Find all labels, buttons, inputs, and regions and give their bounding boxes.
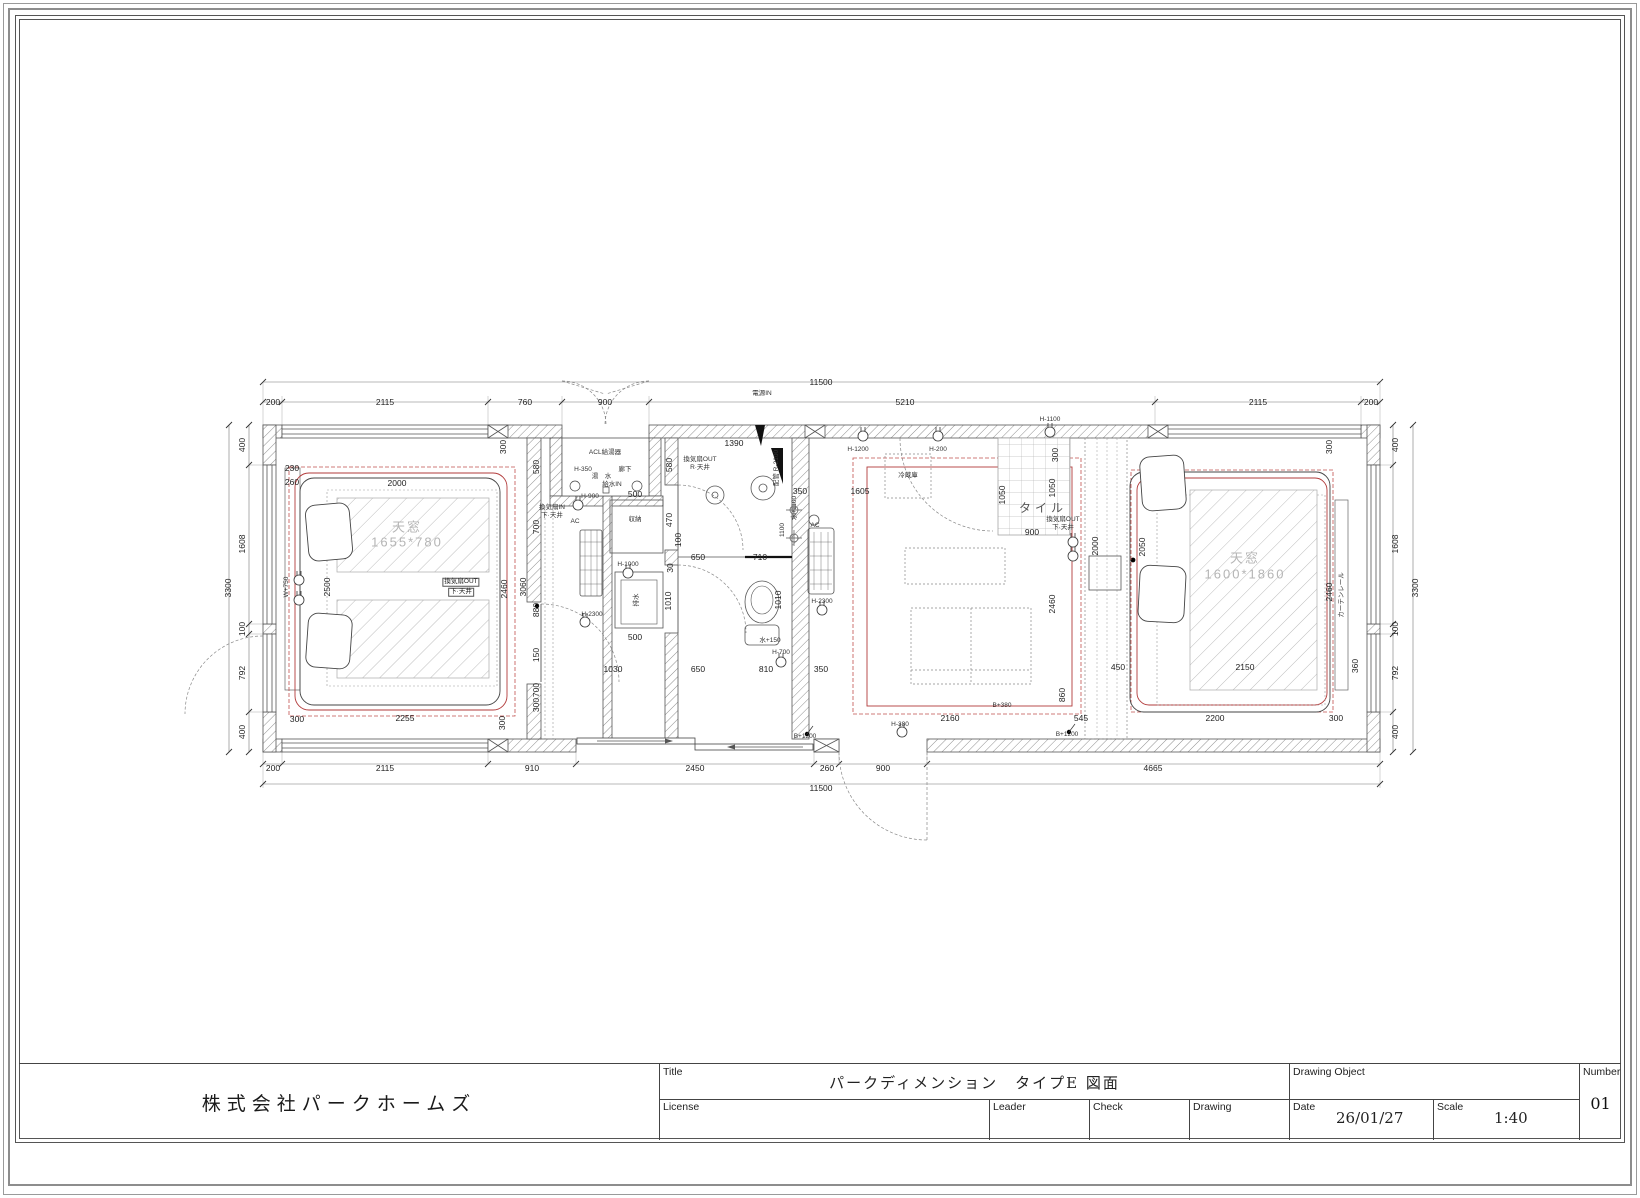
dimension-label: 350: [793, 487, 807, 496]
dimension-label: 810: [759, 665, 773, 674]
plan-annotation: H-2300: [811, 599, 832, 606]
check-cell: Check: [1089, 1099, 1189, 1140]
dimension-label: 2450: [686, 764, 705, 773]
dimension-label: 710: [753, 553, 767, 562]
plan-labels: 1150020021157609005210211520020021159102…: [205, 360, 1435, 805]
plan-annotation: 換気扇OUT: [683, 457, 716, 464]
dimension-label: 500: [628, 633, 642, 642]
dimension-label: 545: [1074, 714, 1088, 723]
plan-annotation: W+750: [284, 577, 291, 598]
title-block: 株式会社パークホームズ Title パークディメンション タイプE 図面 Dra…: [19, 1063, 1621, 1140]
dimension-label: 1608: [238, 535, 247, 554]
plan-annotation: H-2300: [581, 612, 602, 619]
dimension-label: 300: [499, 440, 508, 454]
dimension-label: 300: [1329, 714, 1343, 723]
plan-annotation: H-350: [574, 467, 592, 474]
leader-label: Leader: [993, 1101, 1026, 1113]
dimension-label: 580: [665, 458, 674, 472]
drawing-object-label: Drawing Object: [1293, 1066, 1365, 1078]
plan-annotation: H-200: [929, 447, 947, 454]
dimension-label: 1608: [1391, 535, 1400, 554]
dimension-label: 230: [285, 464, 299, 473]
dimension-label: 260: [820, 764, 834, 773]
plan-annotation: 水: [605, 474, 612, 481]
plan-annotation: B+1200: [794, 734, 817, 741]
date-cell: Date 26/01/27: [1289, 1099, 1433, 1140]
dimension-label: 2000: [388, 479, 407, 488]
plan-annotation: 下·天井: [1052, 525, 1074, 532]
plan-annotation: 電源IN: [752, 391, 772, 398]
dimension-label: 700: [532, 520, 541, 534]
dimension-label: 1600*1860: [1205, 568, 1286, 581]
scale-cell: Scale 1:40: [1433, 1099, 1579, 1140]
plan-annotation: 廊下: [619, 467, 632, 474]
dimension-label: 11500: [809, 784, 832, 793]
dimension-label: 100: [674, 533, 683, 547]
dimension-label: 300: [1325, 440, 1334, 454]
plan-annotation: 1100: [780, 523, 787, 537]
title-cell: Title パークディメンション タイプE 図面: [659, 1064, 1289, 1099]
scale-value: 1:40: [1494, 1109, 1528, 1127]
dimension-label: 200: [1364, 398, 1378, 407]
dimension-label: 400: [238, 725, 247, 739]
dimension-label: 200: [266, 764, 280, 773]
dimension-label: 2460: [1048, 595, 1057, 614]
plan-annotation: AC: [810, 523, 819, 530]
dimension-label: 650: [691, 553, 705, 562]
dimension-label: 260: [285, 478, 299, 487]
dimension-label: 2150: [1236, 663, 1255, 672]
dimension-label: 900: [1025, 528, 1039, 537]
dimension-label: 900: [598, 398, 612, 407]
drawing-object-cell: Drawing Object: [1289, 1064, 1579, 1099]
dimension-label: 650: [691, 665, 705, 674]
plan-annotation: H-1200: [847, 447, 868, 454]
date-value: 26/01/27: [1336, 1109, 1403, 1127]
drawing-title: パークディメンション タイプE 図面: [660, 1072, 1289, 1093]
dimension-label: 2050: [1138, 538, 1147, 557]
dimension-label: 3300: [224, 579, 233, 598]
dimension-label: 30: [666, 563, 675, 572]
dimension-label: 2500: [323, 578, 332, 597]
dimension-label: 2460: [500, 580, 509, 599]
dimension-label: 換気扇OUT: [442, 578, 479, 587]
drawing-cell: Drawing: [1189, 1099, 1289, 1140]
dimension-label: 880: [532, 603, 541, 617]
check-label: Check: [1093, 1101, 1123, 1113]
dimension-label: 910: [525, 764, 539, 773]
plan-annotation: H-380: [891, 722, 909, 729]
dimension-label: 200: [266, 398, 280, 407]
floor-plan: 1150020021157609005210211520020021159102…: [205, 360, 1435, 805]
dimension-label: 1030: [604, 665, 623, 674]
dimension-label: 100: [1391, 622, 1400, 636]
leader-cell: Leader: [989, 1099, 1089, 1140]
plan-annotation: B+380: [993, 703, 1012, 710]
number-label: Number: [1583, 1066, 1620, 1078]
dimension-label: 2000: [1091, 537, 1100, 556]
license-label: License: [663, 1101, 699, 1113]
plan-annotation: 冷蔵庫: [898, 473, 918, 480]
plan-annotation: 水+150: [759, 638, 780, 645]
dimension-label: 下·天井: [448, 588, 474, 597]
dimension-label: 860: [1058, 688, 1067, 702]
plan-annotation: AC: [570, 519, 579, 526]
scale-label: Scale: [1437, 1101, 1463, 1113]
dimension-label: 350: [814, 665, 828, 674]
dimension-label: 400: [1391, 725, 1400, 739]
plan-annotation: 換気扇IN: [539, 505, 565, 512]
company-name: 株式会社パークホームズ: [19, 1064, 659, 1140]
dimension-label: 2200: [1206, 714, 1225, 723]
dimension-label: 1605: [851, 487, 870, 496]
dimension-label: 400: [238, 438, 247, 452]
plan-annotation: 水+1100: [792, 496, 799, 520]
dimension-label: 300: [1051, 448, 1060, 462]
dimension-label: 2115: [1249, 398, 1267, 407]
dimension-label: 2160: [941, 714, 960, 723]
plan-annotation: 換気扇OUT: [1046, 517, 1079, 524]
date-label: Date: [1293, 1101, 1315, 1113]
dimension-label: 11500: [809, 378, 832, 387]
dimension-label: 1050: [1048, 479, 1057, 498]
dimension-label: 2460: [1325, 583, 1334, 602]
plan-annotation: ACL給湯器: [589, 450, 621, 457]
dimension-label: 1010: [664, 592, 673, 611]
dimension-label: 300: [532, 698, 541, 712]
plan-annotation: B+1200: [1056, 732, 1079, 739]
plan-annotation: 配管 R-2100: [774, 450, 781, 486]
dimension-label: 792: [1391, 666, 1400, 680]
dimension-label: 2115: [376, 764, 394, 773]
dimension-label: 500: [628, 490, 642, 499]
dimension-label: 5210: [896, 398, 915, 407]
dimension-label: 3300: [1411, 579, 1420, 598]
dimension-label: 150: [532, 648, 541, 662]
drawing-sheet: { "title_block": { "company": "株式会社パークホー…: [0, 0, 1640, 1198]
dimension-label: 450: [1111, 663, 1125, 672]
dimension-label: 400: [1391, 438, 1400, 452]
plan-annotation: 排水: [634, 594, 641, 607]
plan-annotation: 収納: [629, 517, 642, 524]
plan-annotation: 湯: [592, 474, 599, 481]
dimension-label: 天窓: [392, 521, 422, 534]
number-cell: Number 01: [1579, 1064, 1621, 1140]
dimension-label: 1390: [725, 439, 744, 448]
dimension-label: 3060: [519, 578, 528, 597]
plan-annotation: H-1100: [1040, 417, 1061, 424]
dimension-label: 470: [665, 513, 674, 527]
dimension-label: 760: [518, 398, 532, 407]
plan-annotation: カーテンレール: [1339, 572, 1346, 618]
dimension-label: 1655*780: [371, 536, 443, 549]
dimension-label: 900: [876, 764, 890, 773]
dimension-label: 1050: [998, 486, 1007, 505]
drawing-label: Drawing: [1193, 1101, 1232, 1113]
dimension-label: 1010: [774, 591, 783, 610]
sheet-number: 01: [1580, 1094, 1621, 1113]
dimension-label: 天窓: [1230, 552, 1260, 565]
plan-annotation: H-700: [772, 650, 790, 657]
dimension-label: 2255: [396, 714, 415, 723]
dimension-label: 2115: [376, 398, 394, 407]
plan-annotation: 下·天井: [541, 513, 563, 520]
dimension-label: 792: [238, 666, 247, 680]
dimension-label: 300: [290, 715, 304, 724]
plan-annotation: 給水IN: [602, 482, 622, 489]
dimension-label: タイル: [1019, 502, 1067, 514]
dimension-label: 300: [498, 716, 507, 730]
dimension-label: 700: [532, 683, 541, 697]
plan-annotation: H-900: [581, 494, 599, 501]
dimension-label: 4665: [1144, 764, 1163, 773]
license-cell: License: [659, 1099, 989, 1140]
plan-annotation: H-1000: [617, 562, 638, 569]
plan-annotation: R·天井: [690, 465, 710, 472]
dimension-label: 100: [238, 622, 247, 636]
dimension-label: 580: [532, 460, 541, 474]
dimension-label: 360: [1351, 659, 1360, 673]
